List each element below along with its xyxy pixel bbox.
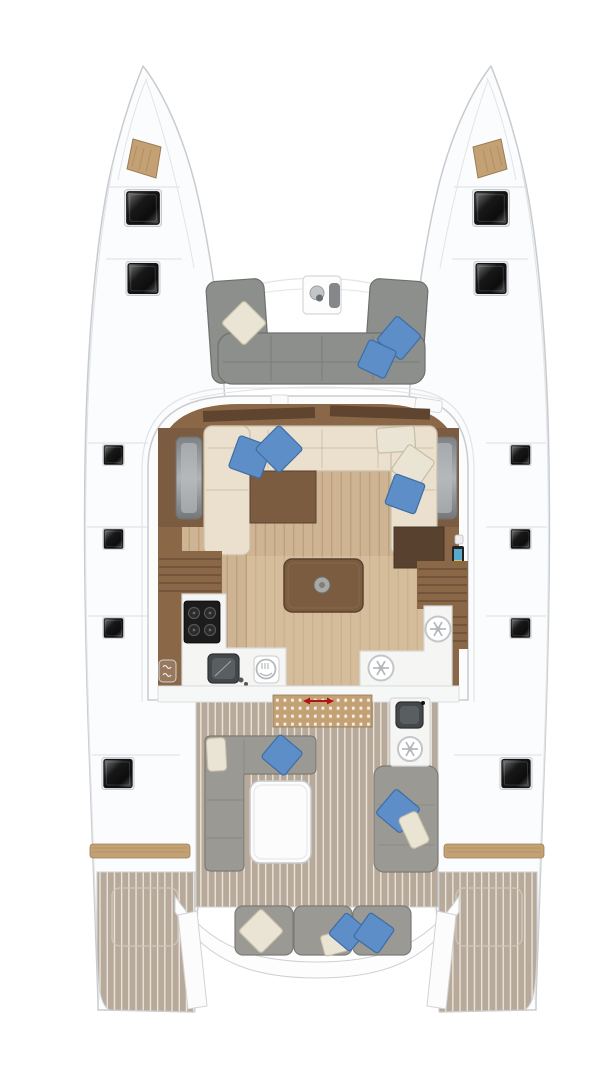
cockpit-wetbar [390,698,430,766]
starboard-stern-platform [439,872,537,1012]
port-stern-platform [97,872,195,1012]
saloon [142,388,474,702]
port-boarding-step [90,844,190,858]
vent-icon [159,660,176,682]
icebox-icon [398,737,422,761]
cooktop [184,601,220,643]
catamaran-floor-plan [0,0,608,1080]
deck-hatch [474,261,508,295]
forward-cockpit [190,276,444,400]
deck-hatch [510,444,531,465]
saloon-table [284,559,363,612]
deck-hatch [500,757,532,789]
faucet [239,678,244,683]
fridge-icon [426,617,451,642]
oven-icon [254,656,279,683]
deck-hatch [124,189,161,226]
port-companionway-stairs [158,551,222,598]
ivory-cushion [206,737,227,771]
deck-hatch [103,617,124,638]
deck-hatch [126,261,160,295]
deck-hatch [102,757,134,789]
deck-hatch [472,189,509,226]
deck-hatch [103,528,124,549]
fridge-icon [369,656,394,681]
port-window-panel [158,428,208,527]
deck-hatch [510,528,531,549]
forward-console [303,276,341,314]
wetbar-sink [396,701,425,728]
starboard-boarding-step [444,844,544,858]
saloon-seat-base [250,471,316,523]
door-track [273,695,372,727]
deck-hatch [510,617,531,638]
console-hatch [329,283,340,308]
cockpit-table [250,781,311,863]
deck-hatch [103,444,124,465]
